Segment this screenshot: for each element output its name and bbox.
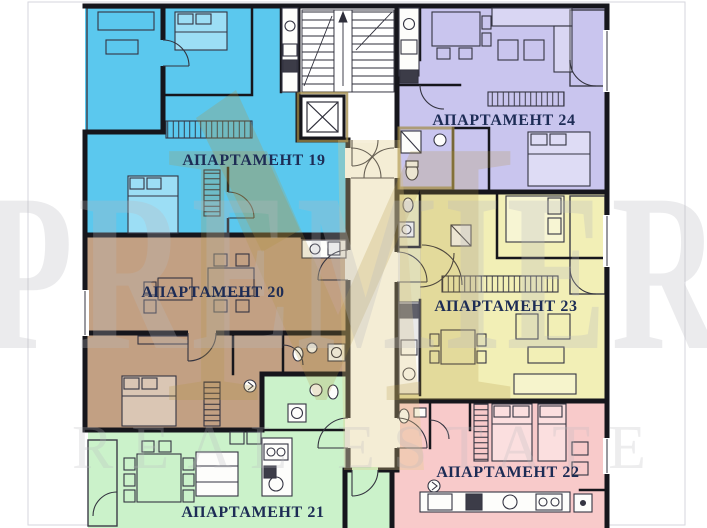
- floorplan-image: M PREMIER REAL ESTATE АПАРТАМЕНТ 19 АПАР…: [0, 0, 707, 528]
- apartment-24-label: АПАРТАМЕНТ 24: [432, 112, 575, 129]
- apartment-23-label: АПАРТАМЕНТ 23: [434, 298, 577, 315]
- apartment-20-label: АПАРТАМЕНТ 20: [141, 284, 284, 301]
- window-icon: [603, 30, 611, 92]
- watermark-brand: PREMIER: [0, 149, 707, 397]
- apartment-21-label: АПАРТАМЕНТ 21: [181, 504, 324, 521]
- apartment-22-label: АПАРТАМЕНТ 22: [436, 464, 579, 481]
- kitchen-counter-icon: [420, 492, 592, 512]
- bed-icon: [175, 12, 227, 50]
- apartment-19-label: АПАРТАМЕНТ 19: [182, 152, 325, 169]
